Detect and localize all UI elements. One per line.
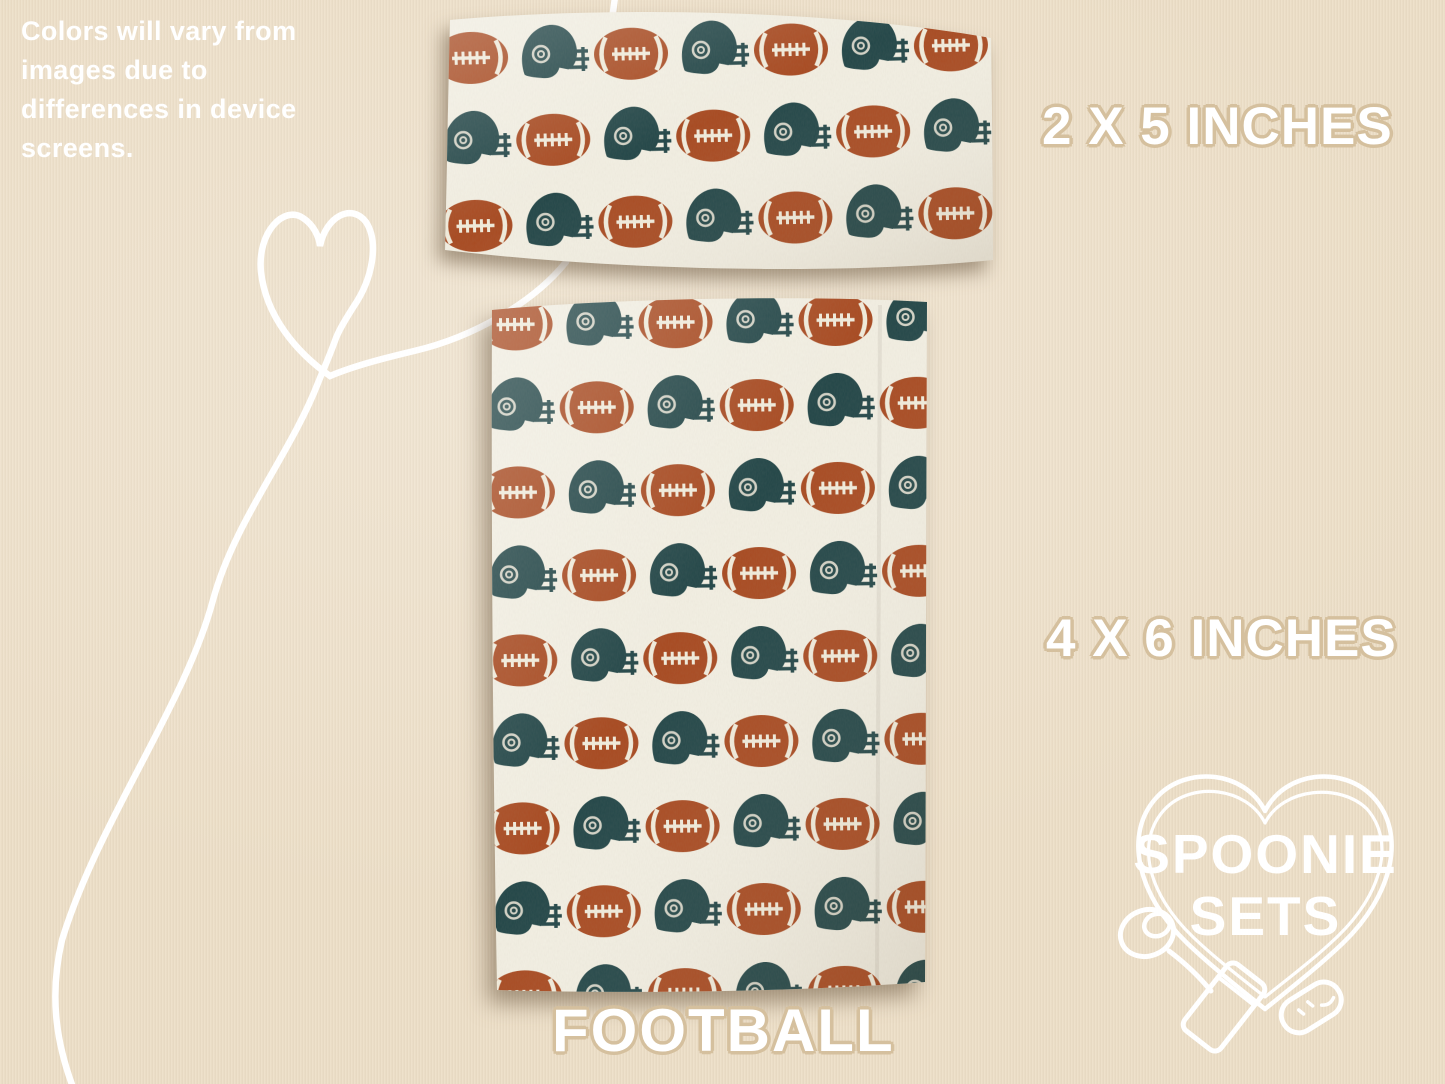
- logo-capsule-icon: [1275, 976, 1348, 1040]
- disclaimer-line: screens.: [21, 129, 297, 168]
- swatch-size-label: 4 X 6 INCHES: [1046, 608, 1397, 669]
- color-disclaimer: Colors will vary from images due to diff…: [21, 12, 297, 168]
- disclaimer-line: differences in device: [21, 90, 297, 129]
- disclaimer-line: images due to: [21, 51, 297, 90]
- product-image-canvas: Colors will vary from images due to diff…: [0, 0, 1445, 1084]
- logo-text-line2: SETS: [1093, 884, 1438, 948]
- spoonie-sets-logo: SPOONIE SETS: [1093, 745, 1438, 1060]
- fabric-swatch-4x6: [483, 293, 931, 1005]
- logo-text-line1: SPOONIE: [1093, 822, 1438, 886]
- strip-size-label: 2 X 5 INCHES: [1042, 96, 1393, 157]
- disclaimer-line: Colors will vary from: [21, 12, 297, 51]
- fabric-strip-2x5: [440, 3, 1002, 281]
- pattern-name-label: FOOTBALL: [552, 996, 895, 1065]
